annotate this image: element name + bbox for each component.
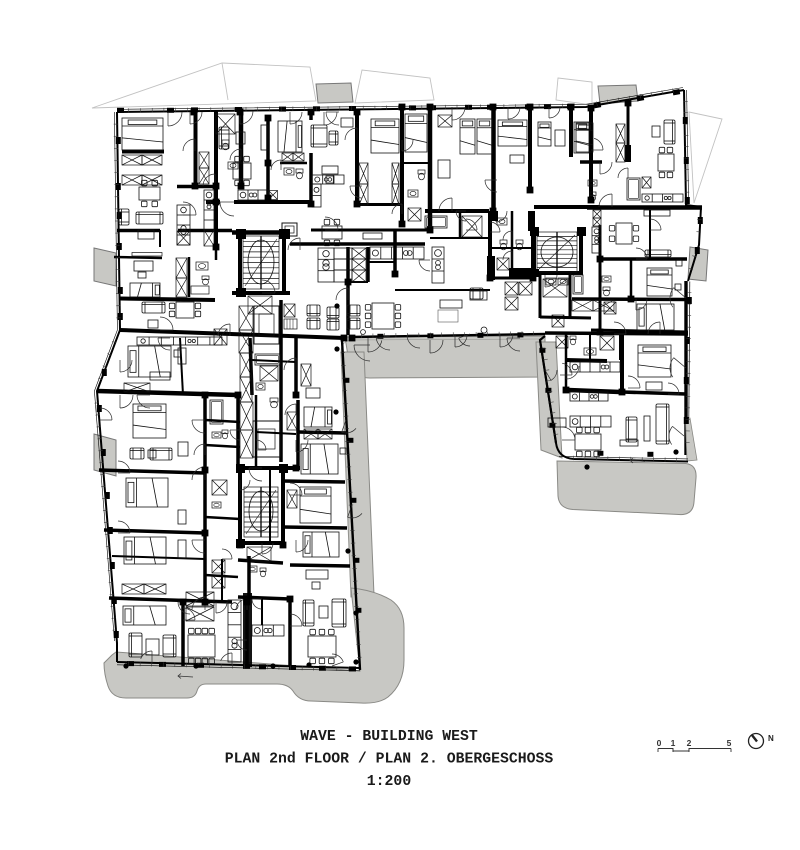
svg-text:0: 0 [657,738,662,748]
svg-text:1:200: 1:200 [367,774,412,790]
svg-text:PLAN 2nd FLOOR / PLAN 2. OBERG: PLAN 2nd FLOOR / PLAN 2. OBERGESCHOSS [225,752,554,768]
svg-text:WAVE - BUILDING WEST: WAVE - BUILDING WEST [300,729,478,745]
svg-text:2: 2 [687,738,692,748]
svg-text:N: N [768,734,774,743]
svg-text:5: 5 [727,738,732,748]
svg-text:1: 1 [671,738,676,748]
